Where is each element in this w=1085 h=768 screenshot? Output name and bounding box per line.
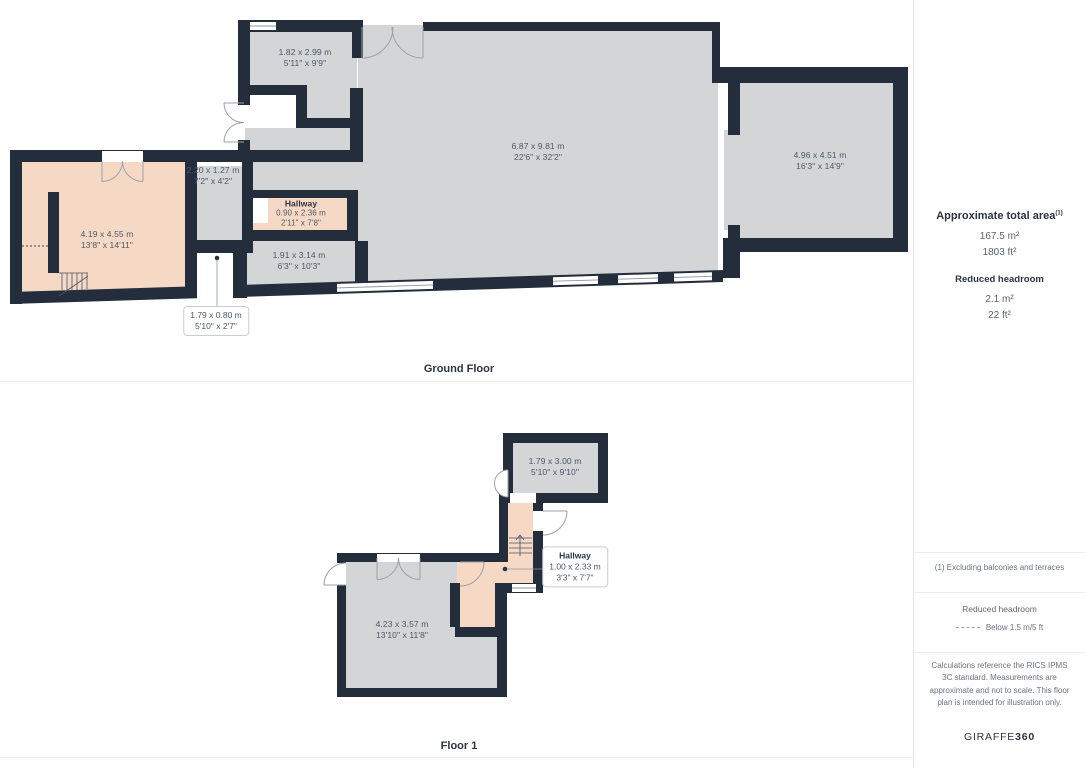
room-label: 1.91 x 3.14 m 6'3" x 10'3"	[273, 250, 326, 272]
room-label: 1.79 x 3.00 m 5'10" x 9'10"	[529, 456, 582, 478]
floorplan-page: 1.82 x 2.99 m 5'11" x 9'9" 6.87 x 9.81 m…	[0, 0, 1085, 768]
brand-name: GIRAFFE	[964, 731, 1015, 743]
room-label: 1.82 x 2.99 m 5'11" x 9'9"	[279, 47, 332, 69]
dimension-callout: 1.79 x 0.80 m 5'10" x 2'7"	[183, 306, 249, 336]
room-label: 2.20 x 1.27 m 7'2" x 4'2"	[187, 165, 240, 187]
room-size-metric: 1.79 x 0.80 m	[190, 310, 242, 321]
room-size-metric: 2.20 x 1.27 m	[187, 165, 240, 176]
legend-value: Below 1.5 m/5 ft	[986, 623, 1043, 632]
room-name: Hallway	[276, 198, 326, 208]
room-label: 4.19 x 4.55 m 13'8" x 14'11"	[81, 229, 134, 251]
room-size-metric: 1.82 x 2.99 m	[279, 47, 332, 58]
room-size-imperial: 2'11" x 7'8"	[276, 218, 326, 228]
reduced-headroom-metric: 2.1 m²	[914, 292, 1085, 308]
floor-title-1: Floor 1	[441, 740, 478, 752]
room-size-imperial: 22'6" x 32'2"	[512, 152, 565, 163]
room-size-imperial: 13'10" x 11'8"	[376, 630, 429, 641]
footnote-marker: (1)	[1055, 210, 1062, 216]
reduced-headroom-imperial: 22 ft²	[914, 308, 1085, 324]
total-area-heading: Approximate total area(1)	[914, 210, 1085, 222]
total-area-metric: 167.5 m²	[914, 229, 1085, 245]
brand-logo: GIRAFFE360	[914, 731, 1085, 743]
room-size-imperial: 6'3" x 10'3"	[273, 261, 326, 272]
hallway-callout: Hallway 1.00 x 2.33 m 3'3" x 7'7"	[542, 546, 608, 587]
total-area-panel: Approximate total area(1) 167.5 m² 1803 …	[914, 210, 1085, 323]
room-size-imperial: 13'8" x 14'11"	[81, 240, 134, 251]
measurements-sidebar: Approximate total area(1) 167.5 m² 1803 …	[913, 0, 1085, 768]
room-size-metric: 1.79 x 3.00 m	[529, 456, 582, 467]
total-area-heading-text: Approximate total area	[936, 210, 1055, 222]
legend-panel: Reduced headroom Below 1.5 m/5 ft	[914, 604, 1085, 632]
room-size-metric: 4.23 x 3.57 m	[376, 619, 429, 630]
floor-divider	[0, 381, 913, 382]
room-label: 4.23 x 3.57 m 13'10" x 11'8"	[376, 619, 429, 641]
room-name: Hallway	[549, 550, 601, 561]
legend-label: Reduced headroom	[914, 604, 1085, 614]
room-label: 6.87 x 9.81 m 22'6" x 32'2"	[512, 141, 565, 163]
room-size-metric: 0.90 x 2.36 m	[276, 209, 326, 219]
floor-divider	[0, 757, 913, 758]
floorplan-canvas: 1.82 x 2.99 m 5'11" x 9'9" 6.87 x 9.81 m…	[0, 0, 913, 768]
sidebar-divider	[914, 652, 1085, 653]
dashed-line-icon	[956, 627, 980, 628]
disclaimer-text: Calculations reference the RICS IPMS 3C …	[914, 660, 1085, 710]
room-size-metric: 4.19 x 4.55 m	[81, 229, 134, 240]
room-label: 4.96 x 4.51 m 16'3" x 14'9"	[794, 150, 847, 172]
room-size-metric: 4.96 x 4.51 m	[794, 150, 847, 161]
room-size-metric: 1.00 x 2.33 m	[549, 561, 601, 572]
floor-title-ground: Ground Floor	[424, 363, 494, 375]
ground-floor-plan	[10, 20, 908, 306]
room-label-hallway: Hallway 0.90 x 2.36 m 2'11" x 7'8"	[276, 198, 326, 227]
room-size-metric: 1.91 x 3.14 m	[273, 250, 326, 261]
room-size-imperial: 5'10" x 2'7"	[190, 321, 242, 332]
room-size-metric: 6.87 x 9.81 m	[512, 141, 565, 152]
reduced-headroom-heading: Reduced headroom	[914, 274, 1085, 285]
room-size-imperial: 3'3" x 7'7"	[549, 573, 601, 584]
sidebar-divider	[914, 552, 1085, 553]
total-area-imperial: 1803 ft²	[914, 245, 1085, 261]
floorplan-drawing	[0, 0, 913, 768]
room-size-imperial: 5'10" x 9'10"	[529, 467, 582, 478]
footnote-text: (1) Excluding balconies and terraces	[914, 563, 1085, 572]
room-size-imperial: 5'11" x 9'9"	[279, 58, 332, 69]
brand-suffix: 360	[1015, 731, 1035, 743]
room-size-imperial: 7'2" x 4'2"	[187, 176, 240, 187]
sidebar-divider	[914, 592, 1085, 593]
room-size-imperial: 16'3" x 14'9"	[794, 161, 847, 172]
